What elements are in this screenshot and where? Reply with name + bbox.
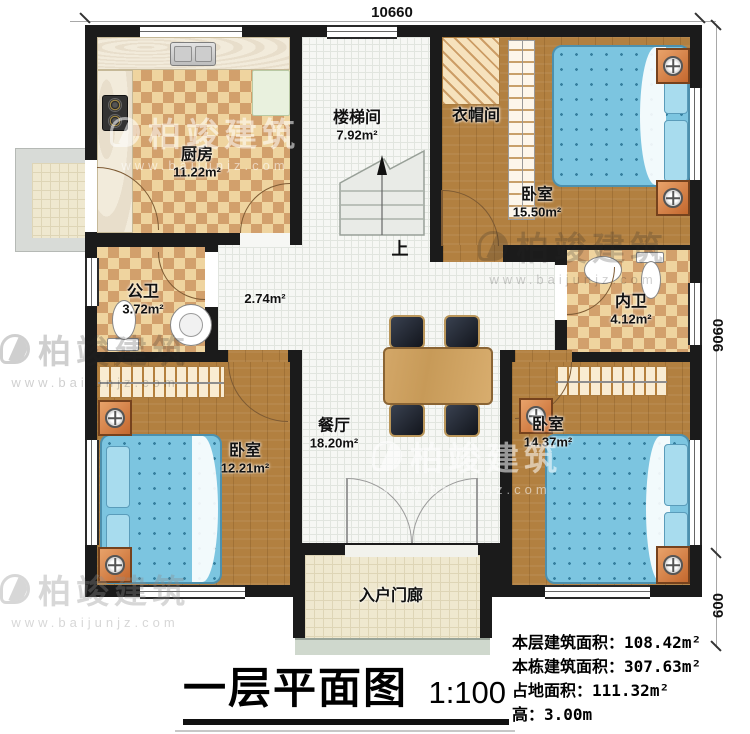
staircase bbox=[334, 143, 430, 239]
stove-burner bbox=[108, 114, 122, 128]
entry-step bbox=[295, 638, 490, 655]
ensuite-bath-door-opening bbox=[555, 265, 567, 320]
side-platform-tile bbox=[32, 163, 85, 238]
plan-scale: 1:100 bbox=[428, 675, 506, 710]
room-label-bedroom-bl: 卧室 12.21m² bbox=[221, 442, 269, 477]
dim-right-lower-label: 600 bbox=[710, 562, 727, 618]
wardrobe-bl bbox=[97, 366, 225, 398]
nightstand bbox=[656, 546, 690, 584]
room-label-kitchen: 厨房 11.22m² bbox=[173, 146, 221, 181]
lamp-icon bbox=[663, 555, 683, 575]
dining-chair bbox=[444, 315, 480, 349]
floor-plan: 10660 9060 600 bbox=[0, 0, 750, 734]
stat-row: 高：3.00m bbox=[512, 703, 701, 727]
title-block: 一层平面图 1:100 bbox=[183, 654, 515, 732]
kitchen-side-door-opening bbox=[85, 160, 97, 232]
stat-row: 本栋建筑面积：307.63m² bbox=[512, 655, 701, 679]
dim-right-label: 9060 bbox=[710, 272, 727, 352]
dining-chair bbox=[389, 403, 425, 437]
cloakroom-closet bbox=[442, 37, 500, 105]
dining-chair bbox=[389, 315, 425, 349]
lamp-icon bbox=[105, 408, 125, 428]
kitchen-sink bbox=[170, 42, 216, 66]
area-stats: 本层建筑面积：108.42m² 本栋建筑面积：307.63m² 占地面积：111… bbox=[512, 631, 701, 727]
room-label-cloakroom: 衣帽间 bbox=[452, 106, 500, 125]
lamp-icon bbox=[663, 56, 683, 76]
room-label-bedroom-br: 卧室 14.37m² bbox=[524, 416, 572, 451]
kitchen-door-opening bbox=[240, 233, 290, 247]
title-underline bbox=[183, 719, 509, 725]
room-label-public-bath: 公卫 3.72m² bbox=[122, 283, 163, 318]
dining-table bbox=[383, 347, 493, 405]
door-leaf-bedroom-tr bbox=[441, 190, 443, 246]
window-bedroom-br-bottom bbox=[545, 585, 650, 599]
entry-door-opening bbox=[345, 545, 478, 557]
bedroom-bl-door-opening bbox=[228, 350, 288, 362]
sink-basin bbox=[174, 46, 192, 62]
entry-door-leaf-right bbox=[476, 478, 478, 543]
nightstand bbox=[656, 180, 690, 216]
title-underline-thin bbox=[175, 730, 515, 732]
entry-door-leaf-left bbox=[346, 478, 348, 543]
window-bedroom-tr-right bbox=[688, 88, 702, 180]
kitchen-appliance bbox=[252, 70, 290, 116]
pillow bbox=[664, 444, 688, 506]
watermark-logo-icon bbox=[0, 334, 30, 364]
public-bath-door-opening bbox=[205, 252, 218, 307]
dining-chair bbox=[444, 403, 480, 437]
room-label-dining: 餐厅 18.20m² bbox=[310, 417, 358, 452]
stat-row: 占地面积：111.32m² bbox=[512, 679, 701, 703]
nightstand bbox=[98, 547, 132, 583]
nightstand bbox=[98, 400, 132, 436]
window-ensuite-right bbox=[688, 283, 702, 345]
room-label-bedroom-tr: 卧室 15.50m² bbox=[513, 186, 561, 221]
bedroom-br-door-opening bbox=[515, 350, 572, 362]
lamp-icon bbox=[663, 188, 683, 208]
window-public-bath-left bbox=[85, 258, 99, 306]
window-stair-top bbox=[327, 25, 397, 39]
stair-up-label: 上 bbox=[392, 235, 409, 260]
window-bedroom-br-right bbox=[688, 440, 702, 545]
lamp-icon bbox=[105, 555, 125, 575]
stat-row: 本层建筑面积：108.42m² bbox=[512, 631, 701, 655]
stove-burner bbox=[108, 98, 122, 112]
kitchen-stove bbox=[102, 95, 128, 131]
sink-basin bbox=[195, 46, 213, 62]
bedroom-tr-door-opening bbox=[443, 245, 503, 262]
bath-sink-basin bbox=[179, 313, 203, 337]
dim-top-label: 10660 bbox=[371, 4, 413, 21]
window-bedroom-bl-left bbox=[85, 440, 99, 545]
room-label-ensuite: 内卫 4.12m² bbox=[610, 293, 651, 328]
plan-title: 一层平面图 bbox=[183, 665, 408, 713]
nightstand bbox=[656, 48, 690, 84]
window-bedroom-bl-bottom bbox=[140, 585, 245, 599]
pillow bbox=[664, 120, 688, 182]
dim-top-line bbox=[70, 21, 716, 22]
room-label-porch: 入户门廊 bbox=[359, 586, 423, 605]
room-label-hallway: 2.74m² bbox=[244, 291, 285, 307]
watermark-logo-icon bbox=[0, 574, 30, 604]
pillow bbox=[106, 446, 130, 508]
room-label-stairwell: 楼梯间 7.92m² bbox=[333, 109, 381, 144]
wardrobe-br bbox=[555, 366, 668, 396]
